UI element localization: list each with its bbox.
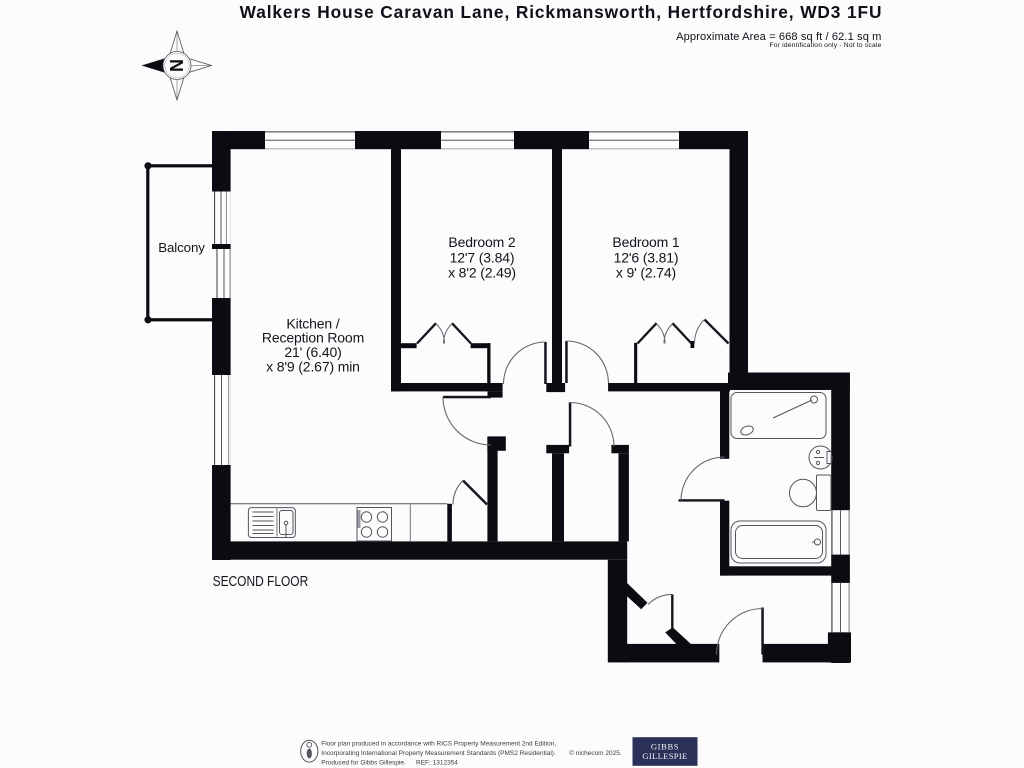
svg-text:Incorporating International Pr: Incorporating International Property Mea…	[321, 750, 556, 757]
svg-text:x 8'9 (2.67) min: x 8'9 (2.67) min	[266, 358, 360, 374]
svg-text:GIBBS: GIBBS	[651, 741, 679, 751]
svg-text:Bedroom 2: Bedroom 2	[448, 234, 515, 250]
svg-text:12'6 (3.81): 12'6 (3.81)	[614, 249, 679, 265]
svg-text:GILLESPIE: GILLESPIE	[642, 751, 687, 761]
svg-text:Floor plan produced in accorda: Floor plan produced in accordance with R…	[321, 741, 556, 748]
svg-text:REF: 1312354: REF: 1312354	[416, 759, 458, 766]
svg-text:x 8'2 (2.49): x 8'2 (2.49)	[448, 265, 516, 281]
svg-text:12'7 (3.84): 12'7 (3.84)	[450, 249, 515, 265]
svg-text:Balcony: Balcony	[158, 240, 205, 255]
svg-text:Produced for Gibbs Gillespie.: Produced for Gibbs Gillespie.	[321, 759, 406, 766]
svg-text:x 9' (2.74): x 9' (2.74)	[616, 265, 676, 281]
svg-text:N: N	[167, 59, 187, 72]
svg-text:© nichecom 2025.: © nichecom 2025.	[569, 749, 622, 757]
svg-text:Bedroom 1: Bedroom 1	[612, 234, 679, 250]
svg-text:Walkers House Caravan Lane, Ri: Walkers House Caravan Lane, Rickmanswort…	[240, 2, 883, 22]
svg-text:For identification only - Not: For identification only - Not to scale	[769, 42, 881, 49]
svg-text:SECOND FLOOR: SECOND FLOOR	[213, 574, 309, 590]
